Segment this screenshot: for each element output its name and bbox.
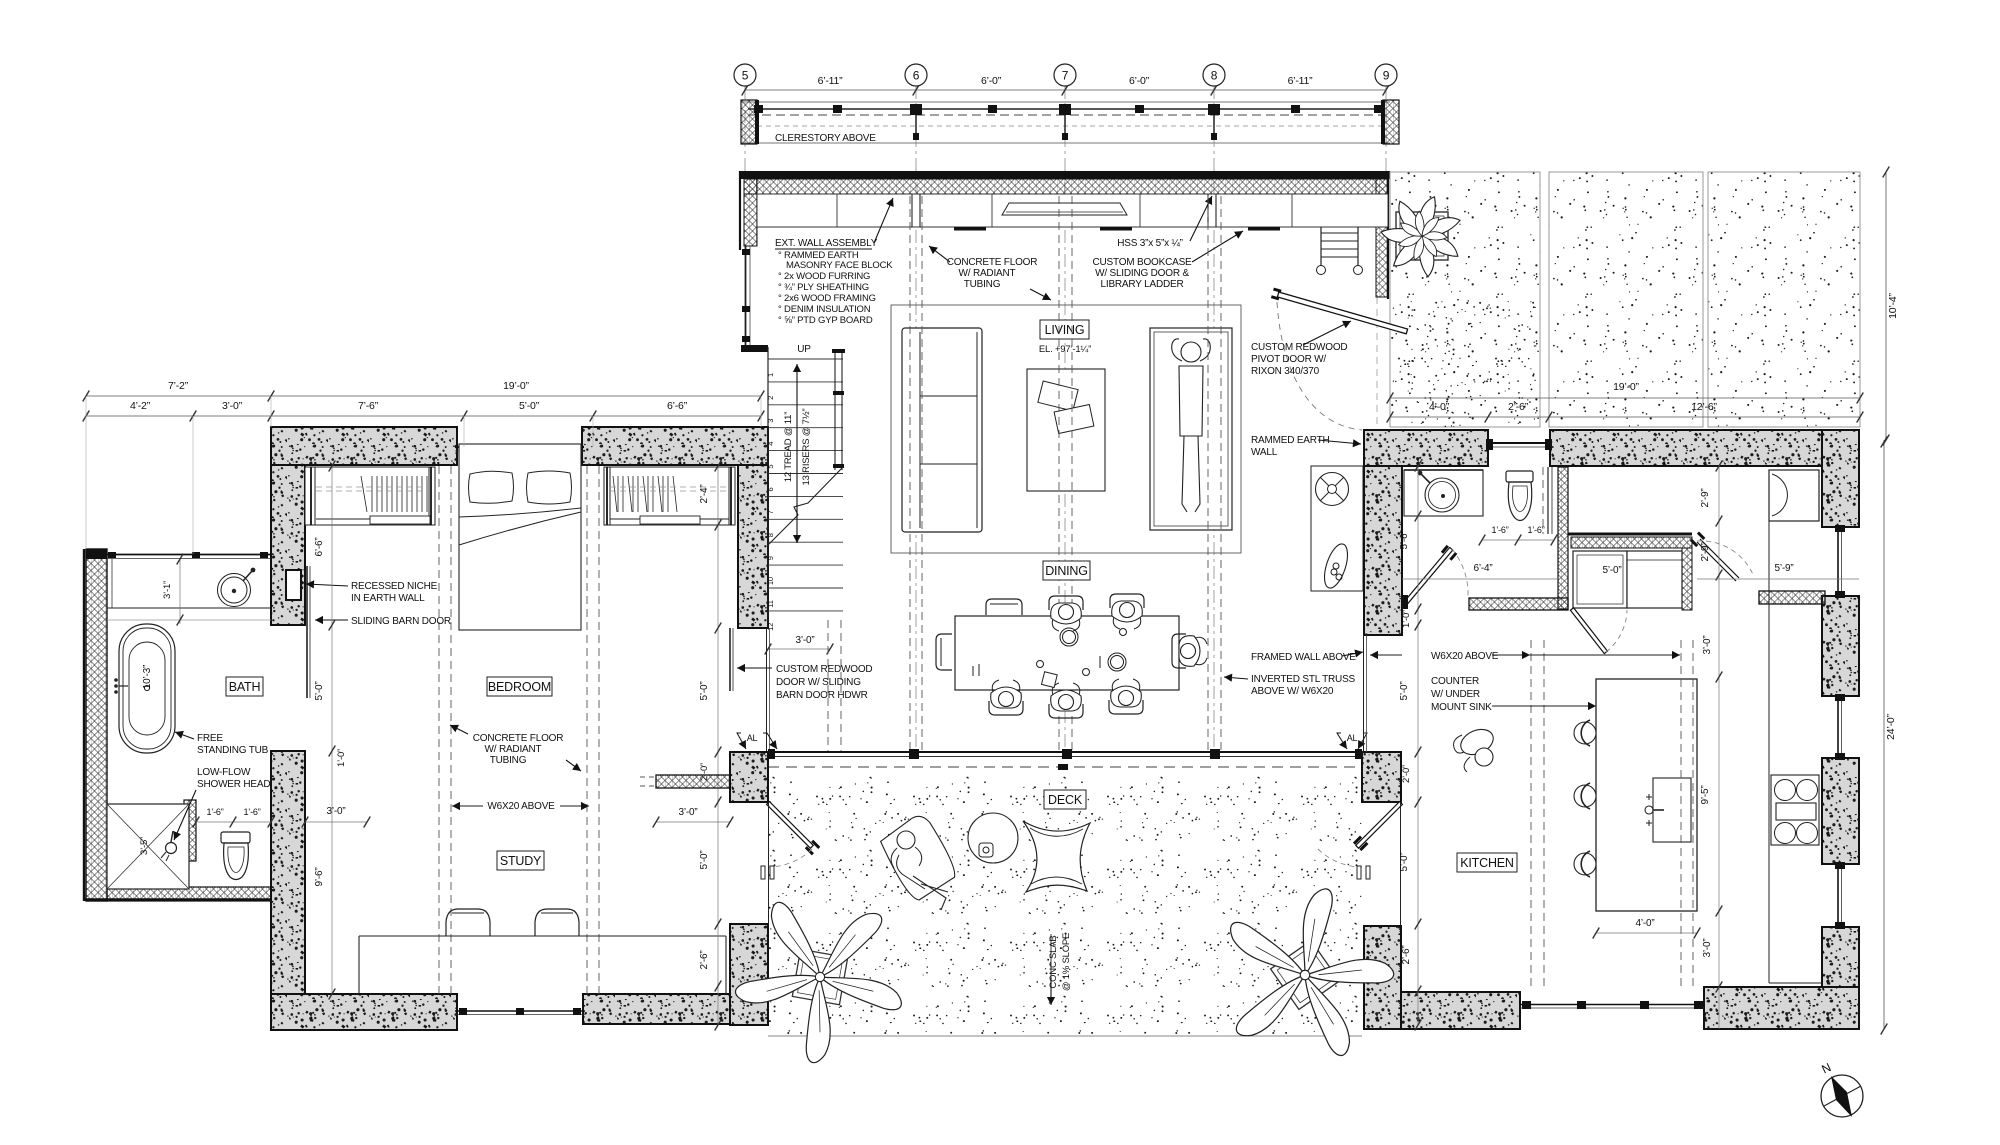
svg-text:2’-4”: 2’-4” (699, 484, 710, 503)
svg-text:11: 11 (766, 600, 775, 607)
svg-text:5’-0”: 5’-0” (314, 681, 325, 700)
svg-text:4: 4 (766, 442, 775, 446)
svg-text:5’-0”: 5’-0” (1602, 565, 1621, 576)
svg-text:MOUNT SINK: MOUNT SINK (1431, 702, 1492, 713)
svg-text:SLIDING BARN DOOR: SLIDING BARN DOOR (351, 616, 451, 627)
svg-text:5’-0”: 5’-0” (1399, 852, 1410, 871)
svg-text:@ 1% SLOPE: @ 1% SLOPE (1061, 933, 1072, 991)
svg-text:PIVOT DOOR W/: PIVOT DOOR W/ (1251, 354, 1326, 365)
svg-text:9’-6”: 9’-6” (314, 867, 325, 886)
svg-text:7: 7 (1062, 69, 1069, 83)
svg-text:3’-0”: 3’-0” (222, 400, 243, 412)
svg-text:8: 8 (1211, 69, 1218, 83)
svg-text:RIXON 340/370: RIXON 340/370 (1251, 366, 1320, 377)
svg-text:W6X20 ABOVE: W6X20 ABOVE (487, 801, 555, 812)
svg-text:5’-0”: 5’-0” (1399, 681, 1410, 700)
svg-text:3’-0”: 3’-0” (795, 635, 814, 646)
svg-text:6: 6 (913, 69, 920, 83)
svg-text:6’-11”: 6’-11” (818, 75, 844, 87)
svg-text:6’-11”: 6’-11” (1288, 75, 1314, 87)
svg-text:2’-6”: 2’-6” (1508, 401, 1529, 413)
svg-text:TUBING: TUBING (964, 279, 1001, 290)
svg-text:3’-0”: 3’-0” (326, 806, 345, 817)
svg-text:3: 3 (766, 419, 775, 423)
svg-text:W/ SLIDING DOOR &: W/ SLIDING DOOR & (1095, 268, 1189, 279)
svg-text:KITCHEN: KITCHEN (1460, 856, 1514, 870)
svg-text:DOOR W/ SLIDING: DOOR W/ SLIDING (776, 677, 861, 688)
svg-text:CONCRETE FLOOR: CONCRETE FLOOR (473, 733, 564, 744)
svg-text:5’-6”: 5’-6” (1399, 530, 1410, 549)
svg-text:4’-0”: 4’-0” (1635, 918, 1654, 929)
svg-text:BARN DOOR HDWR: BARN DOOR HDWR (776, 690, 868, 701)
svg-text:EL. +97’-1¼”: EL. +97’-1¼” (1039, 344, 1091, 355)
svg-text:12’-6”: 12’-6” (1691, 401, 1717, 413)
svg-text:5’-0”: 5’-0” (519, 400, 540, 412)
svg-text:1’-0”: 1’-0” (1401, 610, 1412, 628)
svg-text:2: 2 (766, 396, 775, 400)
svg-text:12: 12 (766, 623, 775, 631)
svg-text:7’-2”: 7’-2” (168, 380, 189, 392)
svg-text:6: 6 (766, 487, 775, 491)
svg-text:° 2x WOOD FURRING: ° 2x WOOD FURRING (778, 271, 870, 282)
svg-text:3’-1”: 3’-1” (162, 581, 173, 599)
svg-text:CUSTOM BOOKCASE: CUSTOM BOOKCASE (1092, 257, 1192, 268)
svg-text:7’-6”: 7’-6” (358, 400, 379, 412)
svg-text:STANDING TUB: STANDING TUB (197, 745, 269, 756)
svg-text:5’-9”: 5’-9” (1774, 563, 1793, 574)
svg-text:CONC SLAB: CONC SLAB (1048, 935, 1059, 988)
svg-text:4’-2”: 4’-2” (130, 400, 151, 412)
svg-text:9: 9 (1383, 69, 1390, 83)
svg-text:CONCRETE FLOOR: CONCRETE FLOOR (947, 257, 1038, 268)
svg-text:IN EARTH WALL: IN EARTH WALL (351, 593, 425, 604)
svg-text:10’-3”: 10’-3” (142, 665, 153, 689)
svg-text:2’-9”: 2’-9” (1700, 542, 1711, 561)
svg-text:9’-5”: 9’-5” (1700, 785, 1711, 804)
svg-text:2’-6”: 2’-6” (1401, 945, 1412, 964)
svg-text:STUDY: STUDY (500, 854, 542, 868)
svg-text:BATH: BATH (229, 680, 261, 694)
svg-text:3’-5”: 3’-5” (139, 837, 150, 855)
svg-text:CLERESTORY ABOVE: CLERESTORY ABOVE (775, 133, 876, 144)
svg-text:12 TREAD @ 11”: 12 TREAD @ 11” (783, 412, 794, 482)
svg-text:RAMMED EARTH: RAMMED EARTH (1251, 435, 1330, 446)
svg-text:3’-0”: 3’-0” (678, 807, 697, 818)
svg-text:BEDROOM: BEDROOM (488, 680, 551, 694)
svg-text:1’-6”: 1’-6” (1491, 525, 1508, 535)
svg-text:UP: UP (797, 344, 811, 355)
svg-text:° ⅝” PTD GYP BOARD: ° ⅝” PTD GYP BOARD (778, 315, 873, 326)
svg-text:8: 8 (766, 533, 775, 537)
svg-text:W/ RADIANT: W/ RADIANT (485, 744, 542, 755)
svg-text:5: 5 (766, 465, 775, 469)
svg-text:10’-4”: 10’-4” (1887, 292, 1899, 318)
svg-text:AL: AL (1347, 733, 1358, 743)
svg-text:° DENIM INSULATION: ° DENIM INSULATION (778, 304, 871, 315)
svg-text:5’-0”: 5’-0” (699, 681, 710, 700)
svg-text:DECK: DECK (1048, 793, 1083, 807)
svg-text:° 2x6 WOOD FRAMING: ° 2x6 WOOD FRAMING (778, 293, 876, 304)
svg-text:6’-0”: 6’-0” (1129, 75, 1150, 87)
svg-text:MASONRY FACE BLOCK: MASONRY FACE BLOCK (786, 260, 893, 271)
svg-text:SHOWER HEAD: SHOWER HEAD (197, 779, 270, 790)
svg-text:WALL: WALL (1251, 447, 1278, 458)
svg-text:HSS 3”x 5”x ¼”: HSS 3”x 5”x ¼” (1117, 237, 1183, 249)
svg-text:TUBING: TUBING (490, 755, 527, 766)
svg-text:4’-0”: 4’-0” (1429, 401, 1450, 413)
svg-text:LIVING: LIVING (1045, 323, 1085, 337)
svg-text:2’-0”: 2’-0” (1401, 765, 1412, 783)
svg-text:ABOVE W/ W6X20: ABOVE W/ W6X20 (1251, 686, 1334, 697)
svg-text:13 RISERS @ 7½”: 13 RISERS @ 7½” (801, 409, 812, 486)
svg-text:LOW-FLOW: LOW-FLOW (197, 767, 251, 778)
svg-text:CUSTOM REDWOOD: CUSTOM REDWOOD (776, 664, 872, 675)
svg-text:24’-0”: 24’-0” (1885, 713, 1897, 739)
svg-text:10: 10 (766, 577, 775, 585)
svg-text:FRAMED WALL ABOVE: FRAMED WALL ABOVE (1251, 652, 1356, 663)
svg-text:5’-0”: 5’-0” (699, 850, 710, 869)
svg-text:RECESSED NICHE: RECESSED NICHE (351, 581, 438, 592)
svg-text:EXT. WALL ASSEMBLY: EXT. WALL ASSEMBLY (775, 238, 878, 249)
svg-text:DINING: DINING (1045, 564, 1088, 578)
svg-text:LIBRARY LADDER: LIBRARY LADDER (1101, 279, 1184, 290)
svg-text:5: 5 (742, 69, 749, 83)
svg-text:19’-0”: 19’-0” (1613, 381, 1639, 393)
svg-text:1’-6”: 1’-6” (206, 807, 223, 817)
svg-text:INVERTED STL TRUSS: INVERTED STL TRUSS (1251, 674, 1356, 685)
svg-text:COUNTER: COUNTER (1431, 676, 1479, 687)
svg-text:W6X20 ABOVE: W6X20 ABOVE (1431, 651, 1499, 662)
svg-text:CUSTOM REDWOOD: CUSTOM REDWOOD (1251, 342, 1347, 353)
svg-text:° ¾” PLY SHEATHING: ° ¾” PLY SHEATHING (778, 282, 869, 293)
svg-text:1’-6”: 1’-6” (1527, 525, 1544, 535)
svg-text:6’-6”: 6’-6” (314, 537, 325, 556)
svg-text:9: 9 (766, 556, 775, 560)
svg-text:2’-6”: 2’-6” (699, 950, 710, 969)
svg-text:1: 1 (766, 373, 775, 377)
svg-text:FREE: FREE (197, 733, 223, 744)
svg-text:3’-0”: 3’-0” (1702, 938, 1713, 957)
svg-text:7: 7 (766, 510, 775, 514)
svg-text:2’-9”: 2’-9” (1700, 488, 1711, 507)
svg-text:1’-0”: 1’-0” (336, 749, 347, 767)
svg-text:6’-4”: 6’-4” (1473, 563, 1492, 574)
svg-text:1’-6”: 1’-6” (243, 807, 260, 817)
svg-text:AL: AL (747, 733, 758, 743)
svg-text:W/ UNDER: W/ UNDER (1431, 689, 1480, 700)
svg-text:6’-6”: 6’-6” (667, 400, 688, 412)
svg-text:3’-0”: 3’-0” (1702, 635, 1713, 654)
svg-text:6’-0”: 6’-0” (981, 75, 1002, 87)
svg-text:19’-0”: 19’-0” (503, 380, 529, 392)
svg-text:W/ RADIANT: W/ RADIANT (959, 268, 1016, 279)
